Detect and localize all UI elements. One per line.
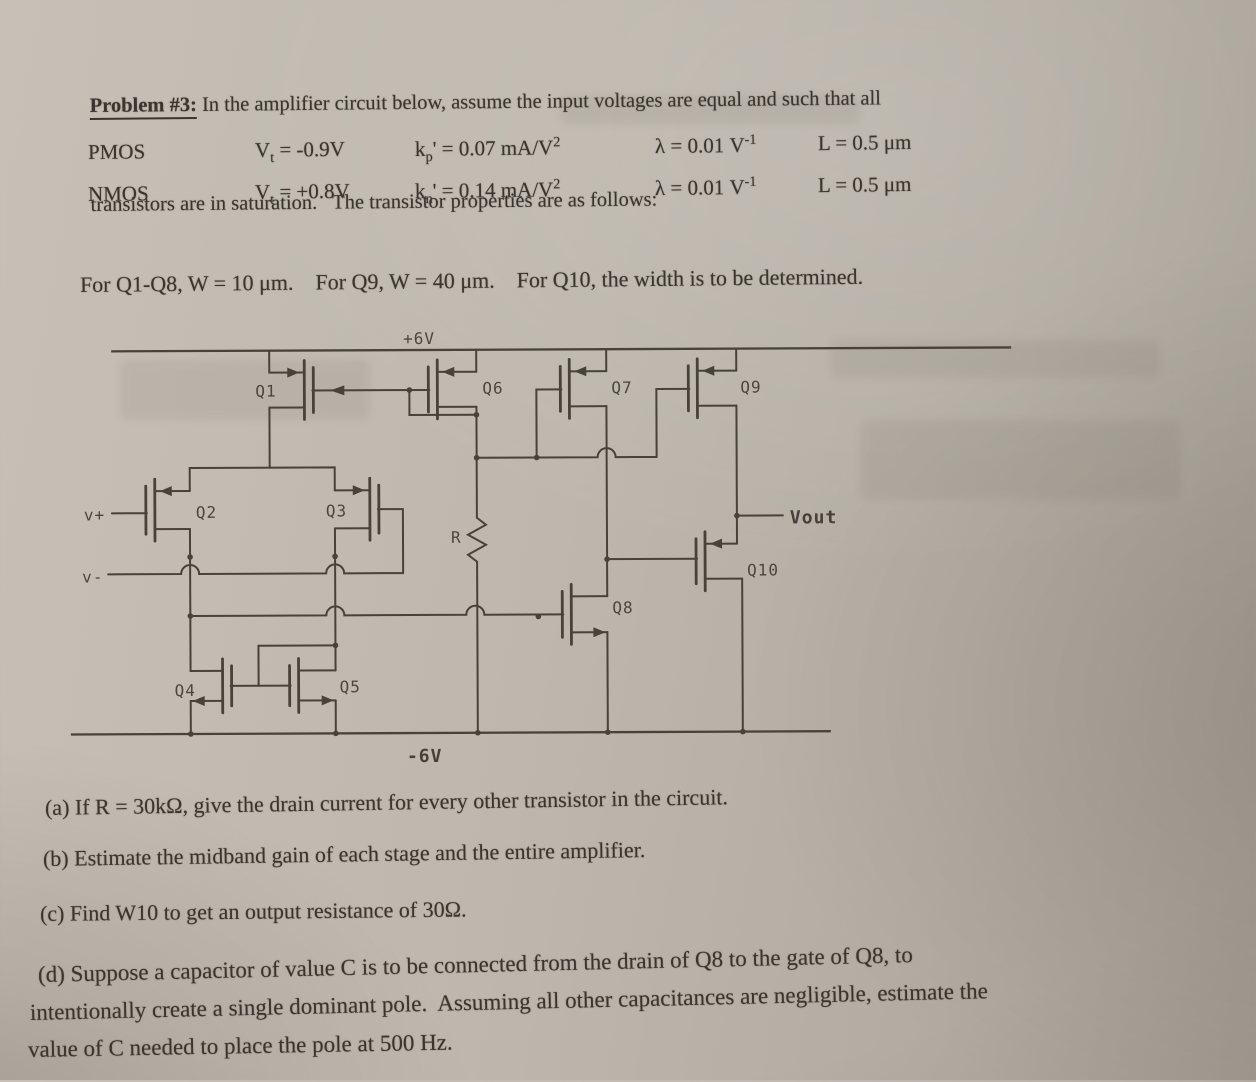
junction-dot	[740, 729, 746, 735]
gate-wire-arrow	[330, 385, 344, 395]
input-minus-wire	[108, 564, 403, 574]
transistor-Q1: Q1	[255, 360, 313, 419]
mosfet-symbols: Q1Q2Q3Q4Q5Q6Q7Q8Q9Q10	[145, 358, 779, 713]
transistor-Q5: Q5	[290, 658, 362, 712]
resistor-label: R	[451, 528, 462, 547]
transistor-label: Q2	[196, 503, 217, 522]
transistor-Q4: Q4	[175, 659, 232, 713]
junction-dot	[536, 614, 542, 620]
junction-dot	[187, 554, 193, 560]
resistor-symbol	[468, 518, 486, 562]
input-minus-label: v-	[82, 567, 103, 586]
output-label: Vout	[790, 507, 837, 528]
transistor-Q2: Q2	[146, 479, 218, 541]
transistor-label: Q6	[482, 379, 503, 398]
transistor-label: Q9	[740, 378, 761, 397]
circuit-wires	[69, 347, 1013, 734]
transistor-Q3: Q3	[326, 478, 379, 540]
positive-supply-rail	[111, 347, 1011, 351]
circuit-diagram: Q1Q2Q3Q4Q5Q6Q7Q8Q9Q10 +6V -6V v+ v- R Vo…	[0, 0, 1256, 1082]
junction-dot	[475, 730, 481, 736]
transistor-label: Q3	[326, 501, 347, 520]
input-plus-label: v+	[84, 505, 105, 524]
junction-dot	[534, 455, 540, 461]
junction-dot	[332, 554, 338, 560]
stage1-output-wire	[190, 605, 563, 616]
transistor-Q8: Q8	[562, 584, 634, 644]
transistor-label: Q8	[612, 598, 633, 617]
transistor-label: Q4	[175, 681, 196, 700]
circuit-labels: +6V -6V v+ v- R Vout	[81, 327, 838, 768]
junction-dot	[604, 556, 610, 562]
junction-dot	[333, 643, 339, 649]
junction-dot	[407, 387, 413, 393]
transistor-label: Q5	[340, 677, 361, 696]
transistor-label: Q7	[611, 378, 632, 397]
negative-supply-rail	[71, 731, 831, 734]
junction-dot	[188, 731, 194, 737]
junction-dot	[188, 613, 194, 619]
transistor-label: Q10	[747, 560, 779, 579]
transistor-Q6: Q6	[428, 360, 504, 419]
transistor-Q7: Q7	[560, 359, 633, 418]
junction-dot	[734, 513, 740, 519]
junction-dot	[605, 729, 611, 735]
positive-rail-label: +6V	[403, 329, 435, 348]
scanned-homework-page: { "header": { "problem_label": "Problem …	[0, 0, 1256, 1080]
junction-dot	[474, 412, 480, 418]
transistor-Q9: Q9	[688, 359, 762, 418]
junction-dot	[474, 455, 480, 461]
junction-dot	[333, 731, 339, 737]
transistor-label: Q1	[255, 382, 276, 401]
bias-wire	[477, 448, 657, 458]
negative-rail-label: -6V	[407, 746, 443, 767]
